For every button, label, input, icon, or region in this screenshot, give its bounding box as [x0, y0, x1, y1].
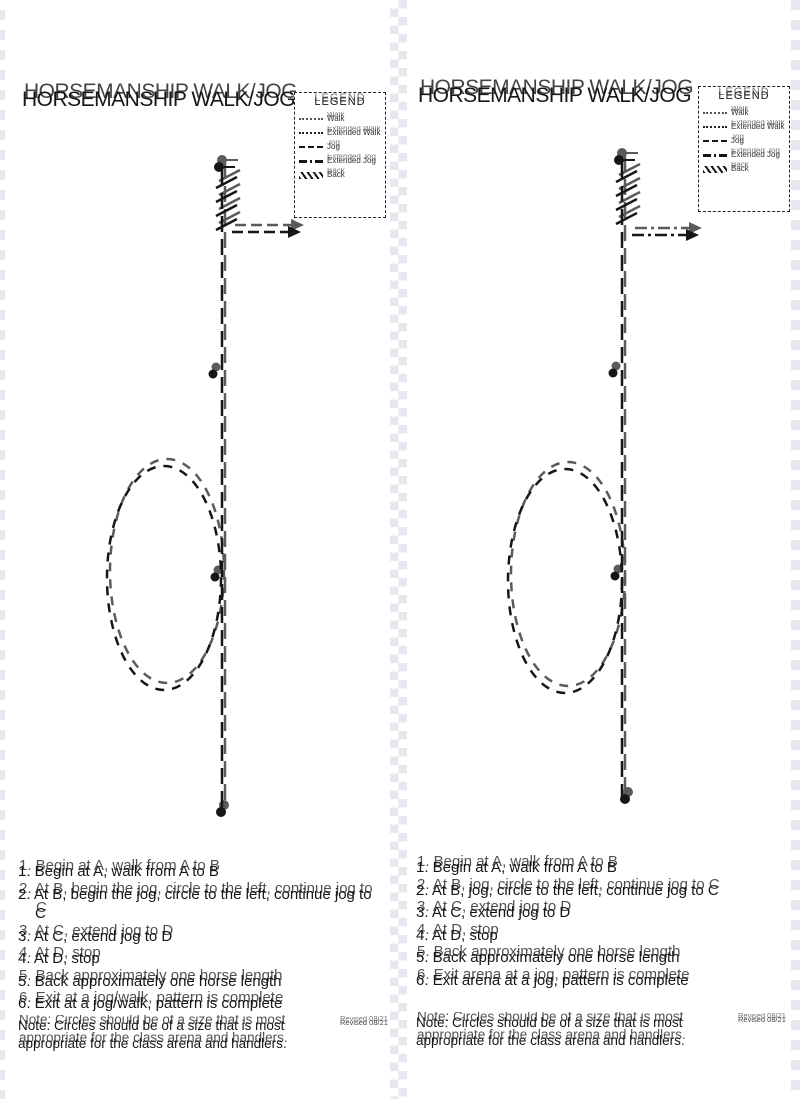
- note-block: Note: Circles should be of a size that i…: [18, 1017, 390, 1053]
- note-text: Note: Circles should be of a size that i…: [416, 1014, 788, 1050]
- instruction-step: 4. At D, stop: [18, 949, 380, 969]
- checkerboard-strip-right: [791, 0, 800, 1099]
- instruction-list: 1. Begin at A, walk from A to B 2. At B,…: [416, 858, 784, 993]
- pattern-diagram: [408, 0, 791, 860]
- pattern-diagram: [6, 0, 390, 860]
- instruction-step: 2. At B, begin the jog, circle to the le…: [18, 885, 380, 924]
- revised-stamp: Revised 08/21: [738, 1016, 786, 1024]
- instruction-step: 5. Back approximately one horse length: [18, 972, 380, 992]
- instruction-step: 6. Exit arena at a jog, pattern is compl…: [416, 971, 784, 991]
- checkerboard-strip-left: [0, 0, 5, 1099]
- instruction-step: 6. Exit at a jog/walk, pattern is comple…: [18, 994, 380, 1014]
- checkerboard-strip-center: [390, 0, 407, 1099]
- instruction-step: 3. At C, extend jog to D: [416, 903, 784, 923]
- pattern-panel-left: HORSEMANSHIP WALK/JOG LEGEND Walk Extend…: [6, 0, 390, 1099]
- instruction-step: 1. Begin at A, walk from A to B: [18, 862, 380, 882]
- pattern-sheet-page: HORSEMANSHIP WALK/JOG LEGEND Walk Extend…: [0, 0, 800, 1099]
- instruction-list: 1. Begin at A, walk from A to B 2. At B,…: [18, 862, 380, 1017]
- revised-stamp: Revised 08/21: [340, 1019, 388, 1027]
- instruction-step: 3. At C, extend jog to D: [18, 927, 380, 947]
- instruction-step: 4. At D, stop: [416, 926, 784, 946]
- note-text: Note: Circles should be of a size that i…: [18, 1017, 390, 1053]
- pattern-panel-right: HORSEMANSHIP WALK/JOG LEGEND Walk Extend…: [408, 0, 791, 1099]
- note-block: Note: Circles should be of a size that i…: [416, 1014, 788, 1050]
- instruction-step: 5. Back approximately one horse length: [416, 948, 784, 968]
- instruction-step: 1. Begin at A, walk from A to B: [416, 858, 784, 878]
- instruction-step: 2. At B, jog, circle to the left, contin…: [416, 881, 784, 901]
